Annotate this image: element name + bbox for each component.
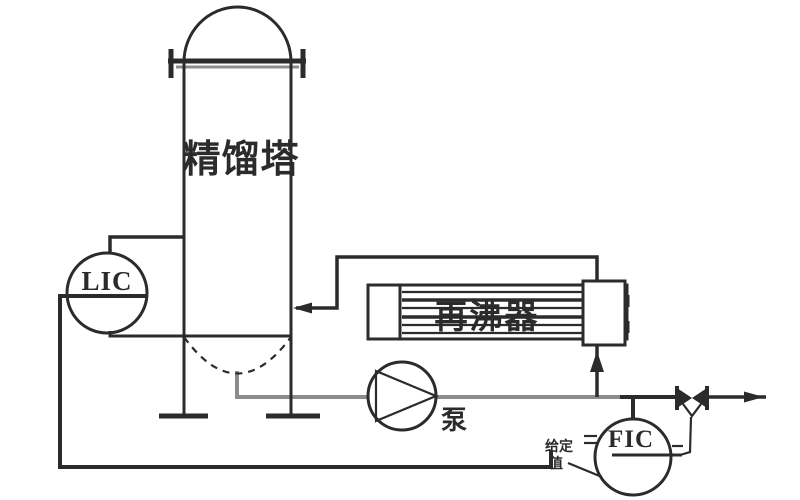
column-dome: [184, 7, 291, 62]
reboiler-feed-arrow: [590, 351, 604, 372]
flow-controller: FIC 给定 值: [545, 419, 682, 495]
reboiler: 再沸器: [368, 281, 628, 345]
process-diagram: 精馏塔 再沸器 泵 LIC FIC 给定 值: [0, 0, 800, 500]
bottoms-drawoff-line: [237, 371, 368, 397]
column-bottom-dish: [184, 337, 291, 374]
reboiler-channel-right: [583, 281, 625, 345]
vapor-return-arrow: [293, 303, 312, 314]
setpoint-label-line1: 给定: [545, 438, 573, 454]
lic-lower-tap-line: [110, 331, 291, 336]
valve-stem-yoke: [683, 404, 701, 416]
fic-valve-signal-line: [680, 417, 691, 455]
control-valve: [677, 386, 707, 416]
fic-label: FIC: [608, 426, 654, 453]
flow-direction-arrow: [744, 392, 764, 403]
level-controller: LIC: [58, 253, 148, 333]
pump-label: 泵: [441, 405, 467, 435]
column-label: 精馏塔: [182, 139, 299, 181]
diagram-canvas: 精馏塔 再沸器 泵 LIC FIC 给定 值: [0, 0, 800, 500]
distillation-column: 精馏塔: [159, 7, 320, 416]
lic-upper-tap-line: [110, 237, 184, 253]
reboiler-label: 再沸器: [435, 298, 540, 335]
lic-label: LIC: [81, 266, 132, 296]
setpoint-label-line2: 值: [549, 455, 563, 471]
